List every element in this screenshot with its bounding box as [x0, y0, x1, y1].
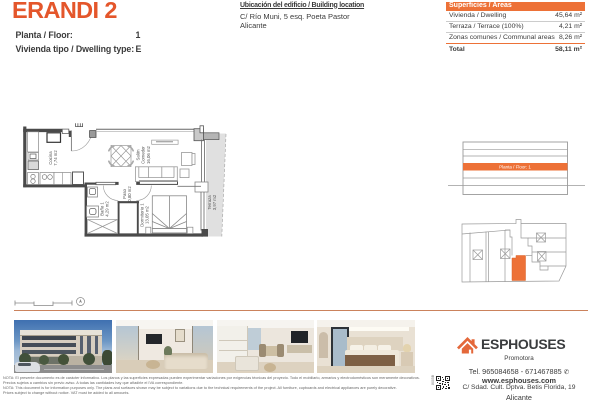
svg-text:0,80 m2: 0,80 m2 [127, 186, 132, 202]
svg-text:13,05 m2: 13,05 m2 [145, 205, 150, 224]
svg-text:Planta / Floor: 1: Planta / Floor: 1 [499, 165, 531, 170]
svg-text:7,74 m2: 7,74 m2 [53, 150, 58, 166]
svg-text:Comedor: Comedor [141, 146, 146, 164]
svg-text:16,06 m2: 16,06 m2 [146, 145, 151, 164]
svg-text:4,29 m2: 4,29 m2 [105, 201, 110, 217]
svg-text:3,97 m2: 3,97 m2 [212, 194, 217, 210]
